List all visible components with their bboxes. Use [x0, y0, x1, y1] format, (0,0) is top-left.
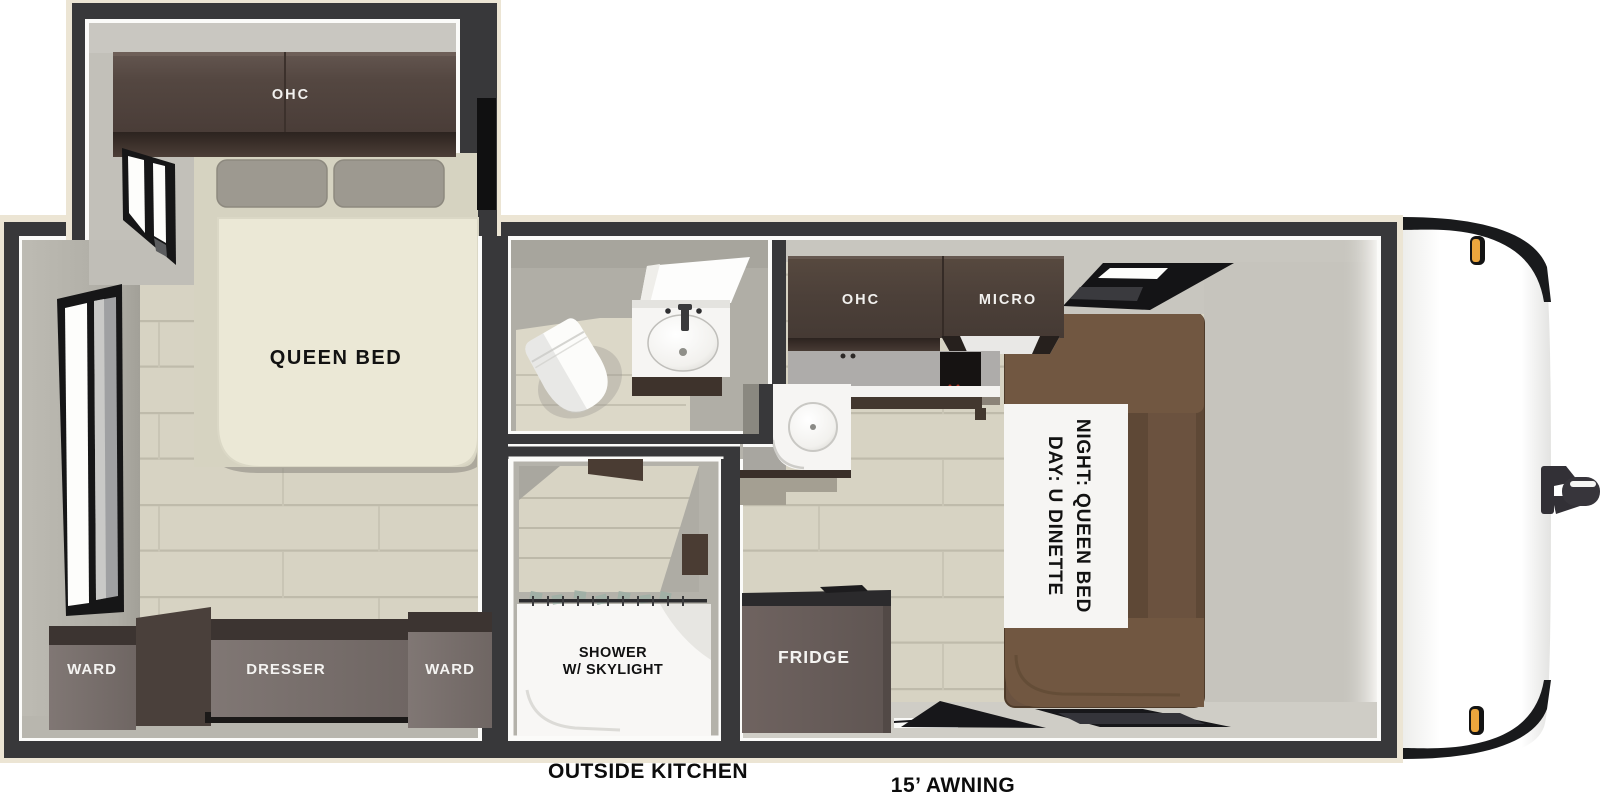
svg-text:OHC: OHC	[842, 292, 880, 308]
svg-text:15’ AWNING: 15’ AWNING	[891, 774, 1015, 796]
svg-text:QUEEN BED: QUEEN BED	[270, 347, 402, 369]
svg-text:NIGHT: QUEEN BED: NIGHT: QUEEN BED	[1072, 419, 1093, 613]
svg-text:WARD: WARD	[67, 661, 117, 678]
svg-text:OHC: OHC	[272, 87, 310, 103]
svg-text:MICRO: MICRO	[979, 292, 1037, 308]
svg-text:DAY: U DINETTE: DAY: U DINETTE	[1044, 436, 1065, 596]
svg-text:WARD: WARD	[425, 661, 475, 678]
svg-text:OUTSIDE KITCHEN: OUTSIDE KITCHEN	[548, 760, 748, 783]
svg-text:FRIDGE: FRIDGE	[778, 647, 850, 667]
svg-text:DRESSER: DRESSER	[246, 661, 326, 678]
svg-text:W/ SKYLIGHT: W/ SKYLIGHT	[563, 662, 664, 678]
svg-text:SHOWER: SHOWER	[579, 645, 647, 661]
